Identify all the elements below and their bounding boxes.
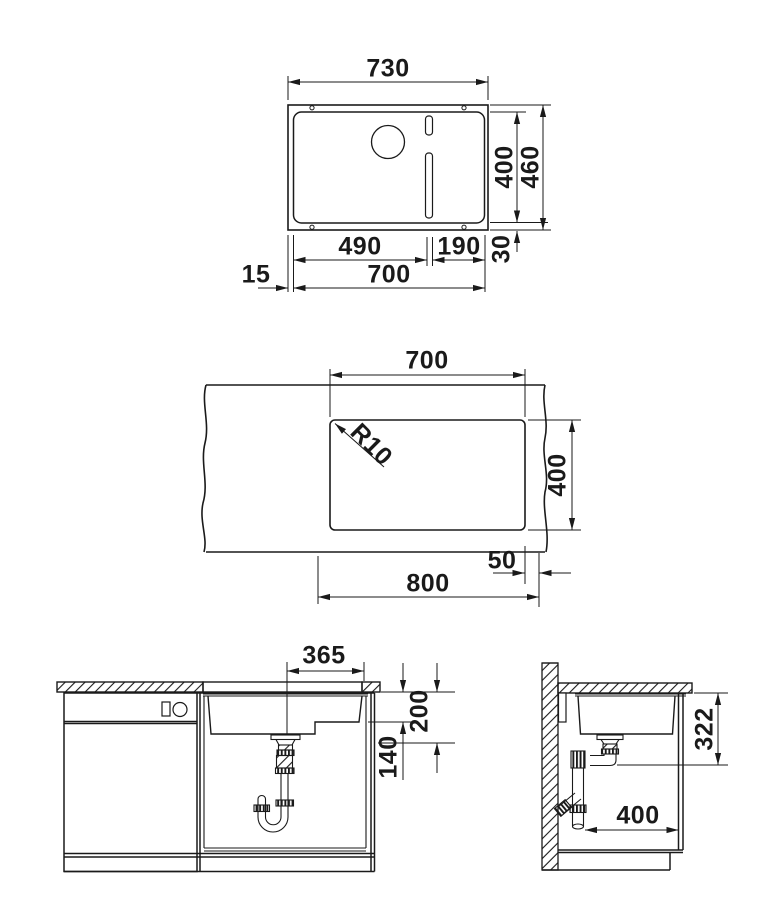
trap-nut <box>254 805 270 812</box>
trap-nut <box>277 750 294 756</box>
bowl-section <box>203 694 368 734</box>
trap-nut <box>570 805 586 813</box>
trap-nut <box>602 749 619 754</box>
trap-nut <box>276 768 295 774</box>
dim-label-365: 365 <box>302 644 345 669</box>
wall-cleat <box>559 693 567 722</box>
sink-bowl-outline <box>294 112 485 223</box>
worktop-section-right <box>362 682 380 692</box>
dim-label-140: 140 <box>377 735 402 778</box>
worktop-front-edge <box>203 682 362 692</box>
worktop-cutout-view <box>202 369 581 607</box>
dim-label-190: 190 <box>437 235 480 260</box>
level-slot-lower <box>426 153 433 218</box>
dim-label-730: 730 <box>366 57 409 82</box>
dim-label-400-top: 400 <box>493 145 518 188</box>
dim-label-30: 30 <box>490 235 515 264</box>
dim-label-15: 15 <box>242 263 271 288</box>
dim-label-322: 322 <box>693 707 718 750</box>
worktop-section-side <box>558 683 692 693</box>
dim-label-700-top: 700 <box>367 263 410 288</box>
drain-trap-front <box>254 735 300 832</box>
dim-label-200: 200 <box>408 689 433 732</box>
control-button-rect <box>162 702 170 716</box>
dishwasher-cabinet <box>64 693 197 872</box>
dim-label-460: 460 <box>519 145 544 188</box>
drain-trap-side <box>554 735 623 829</box>
worktop-section-left <box>57 682 203 692</box>
bowl-section-side <box>575 694 686 734</box>
dim-label-800: 800 <box>406 572 449 597</box>
dim-label-50: 50 <box>488 549 517 574</box>
dim-label-400-side: 400 <box>616 804 659 829</box>
trap-nut <box>276 800 294 806</box>
sink-base-cabinet <box>64 693 375 872</box>
fixing-holes <box>310 106 466 230</box>
break-edge-left <box>202 385 207 552</box>
dim-label-400-cutout: 400 <box>546 453 571 496</box>
sink-outer-edge <box>288 105 488 230</box>
control-knob <box>173 703 187 717</box>
technical-drawing-page: 730 400 460 30 490 190 700 15 700 R10 40… <box>0 0 775 914</box>
level-slot-upper <box>426 116 433 135</box>
dim-label-700-cutout: 700 <box>405 349 448 374</box>
dim-label-490: 490 <box>338 235 381 260</box>
wall-section <box>542 663 558 870</box>
trap-nut <box>571 751 585 768</box>
drain-hole <box>372 126 405 159</box>
side-section-view <box>542 663 728 870</box>
